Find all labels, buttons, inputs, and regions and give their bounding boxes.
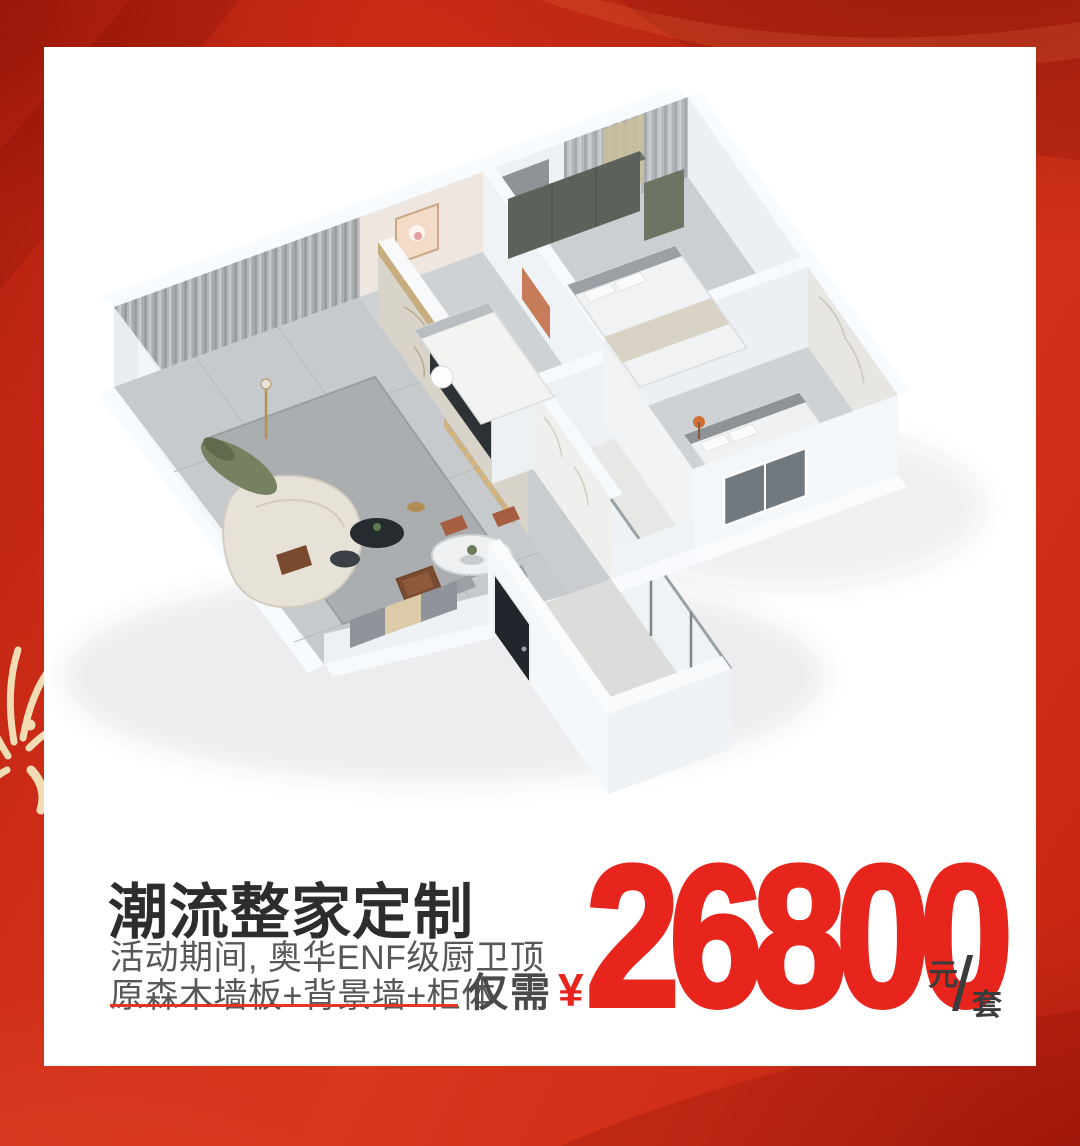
- poster-title: 潮流整家定制: [108, 883, 474, 943]
- price-unit: 元 / 套: [928, 955, 1018, 1027]
- price-unit-slash: /: [952, 947, 973, 1023]
- divider-line: [110, 1004, 458, 1007]
- poster-card: 潮流整家定制 活动期间, 奥华ENF级厨卫顶 原森木墙板+背景墙+柜体 仅需 ¥…: [44, 47, 1036, 1066]
- price-unit-tao: 套: [972, 991, 1002, 1021]
- currency-symbol: ¥: [558, 967, 584, 1013]
- apartment-3d-render: [44, 87, 1036, 807]
- promo-poster: 潮流整家定制 活动期间, 奥华ENF级厨卫顶 原森木墙板+背景墙+柜体 仅需 ¥…: [0, 0, 1080, 1146]
- price-prefix: 仅需: [468, 973, 552, 1013]
- poster-subtitle-line2: 原森木墙板+背景墙+柜体: [110, 979, 496, 1013]
- poster-subtitle-line1: 活动期间, 奥华ENF级厨卫顶: [110, 941, 544, 975]
